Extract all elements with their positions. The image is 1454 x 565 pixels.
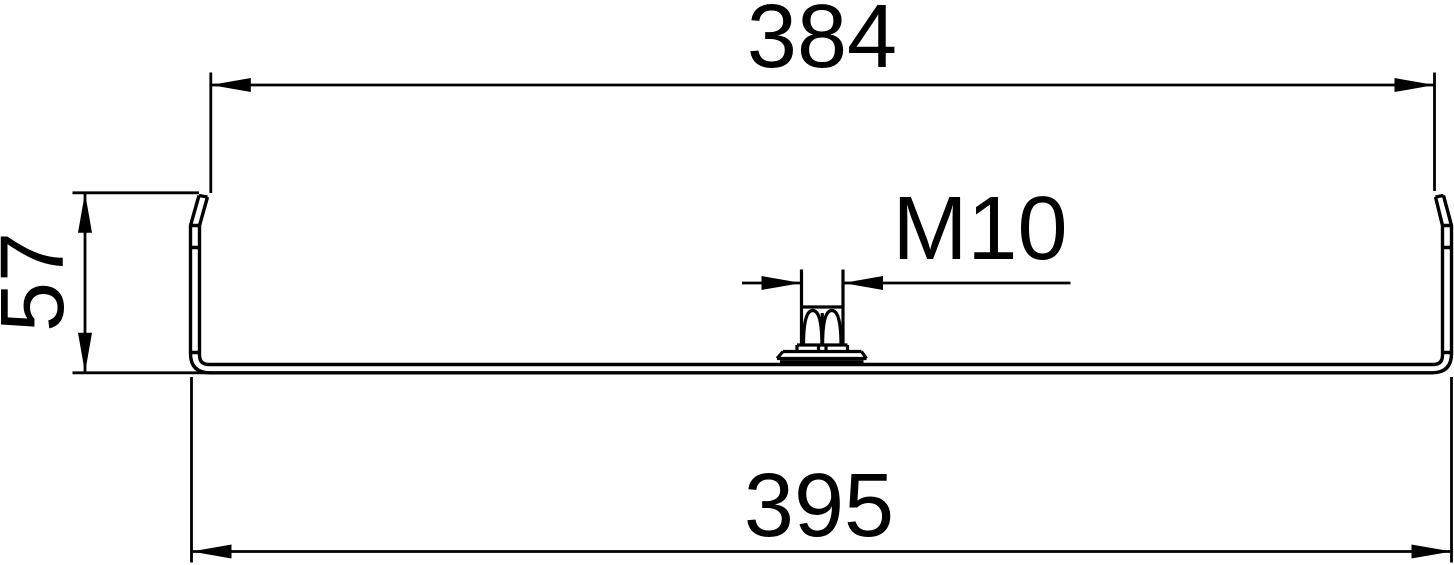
- dim-left-arrow-top: [78, 193, 92, 233]
- dimension-width-top: [211, 73, 1435, 194]
- stud-flange-base: [777, 352, 867, 362]
- right-lip-top-edge: [1436, 196, 1444, 198]
- dimension-label-width-bottom: 395: [744, 456, 894, 556]
- dim-top-arrow-right: [1395, 78, 1435, 92]
- dim-top-arrow-left: [211, 78, 251, 92]
- left-lip-top-edge: [199, 196, 208, 198]
- dim-thread-arrow-right: [843, 276, 883, 290]
- profile-section-drawing: 384 57 M10 395: [0, 0, 1454, 565]
- technical-drawing-canvas: 384 57 M10 395: [0, 0, 1454, 565]
- dim-left-arrow-bottom: [78, 333, 92, 373]
- dim-thread-arrow-left: [762, 276, 802, 290]
- dimension-label-thread: M10: [892, 179, 1067, 279]
- dim-bottom-arrow-left: [192, 545, 232, 559]
- dimension-label-width-top: 384: [747, 0, 897, 87]
- dim-bottom-arrow-right: [1412, 545, 1452, 559]
- dimension-label-height-left: 57: [0, 232, 83, 332]
- dim-top-extension-lines: [211, 73, 1435, 194]
